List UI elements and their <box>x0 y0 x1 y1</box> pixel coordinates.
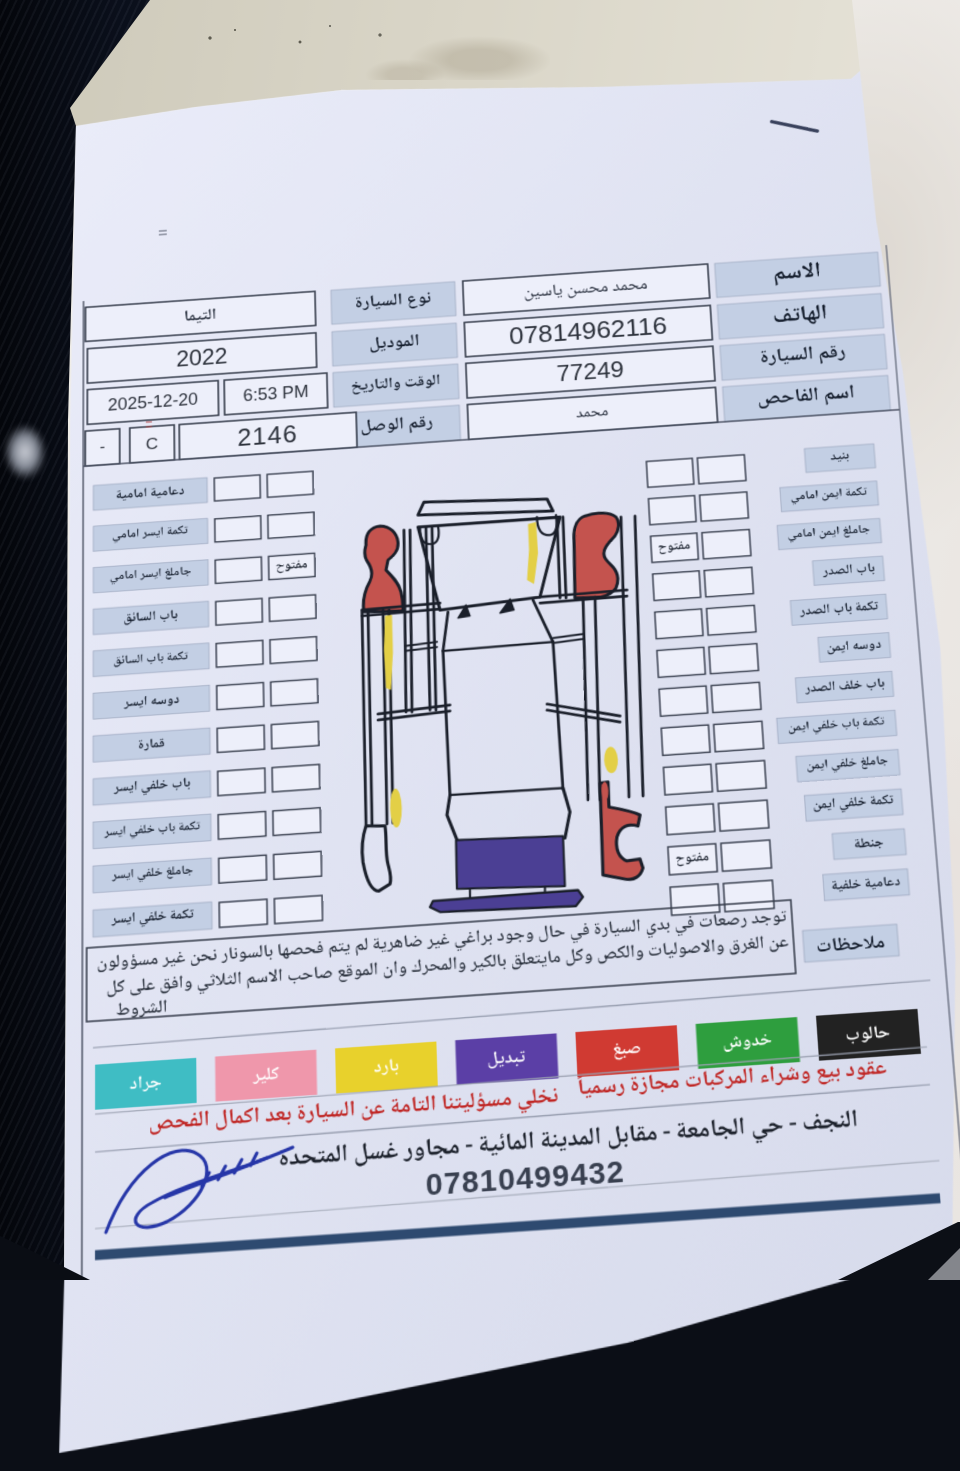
svg-text:2146: 2146 <box>237 421 298 452</box>
svg-text:C: C <box>146 436 159 454</box>
svg-text:-: - <box>100 440 105 457</box>
svg-text:77249: 77249 <box>556 357 625 387</box>
svg-text:2022: 2022 <box>176 345 228 373</box>
